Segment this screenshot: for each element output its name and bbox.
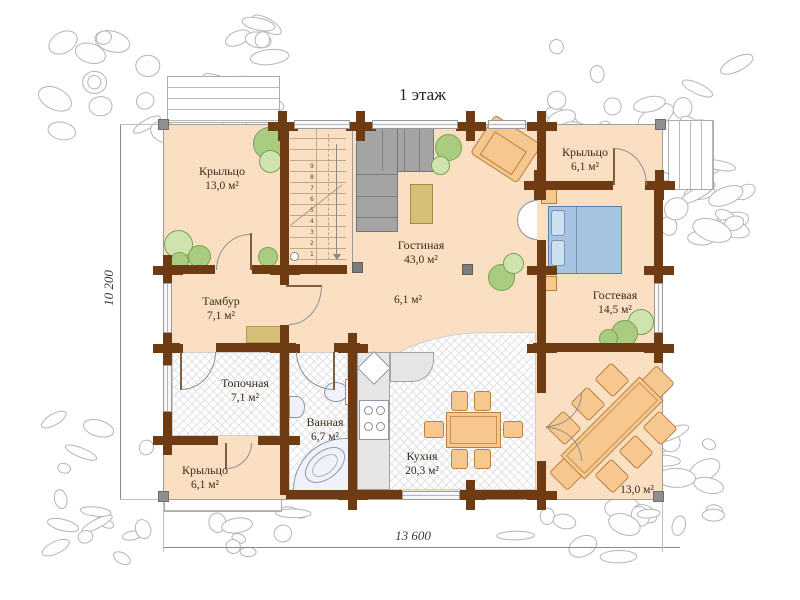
doormat [246, 326, 284, 343]
burner-icon [376, 406, 385, 415]
room-name: Крыльцо [160, 463, 250, 478]
stair-step-number: 8 [310, 174, 314, 181]
wall-joint [655, 170, 664, 200]
page-title: 1 этаж [350, 85, 495, 105]
window [402, 491, 460, 500]
window [488, 120, 526, 129]
stair-step-number: 3 [310, 229, 314, 236]
room-area: 6,7 м² [280, 430, 370, 445]
plant [258, 247, 278, 267]
wall-joint [348, 480, 357, 510]
dining-table [446, 412, 501, 448]
room-area: 20,3 м² [377, 464, 467, 479]
room-label-bathroom: Ванная 6,7 м² [280, 415, 370, 445]
room-label-guest: Гостевая 14,5 м² [570, 288, 660, 318]
plant [431, 156, 450, 175]
wall-joint [278, 111, 287, 141]
window [372, 120, 458, 129]
sofa-cushion-line [357, 174, 397, 175]
stair-dashed-rail [328, 134, 329, 260]
wall-joint [163, 425, 172, 455]
room-area: 13,0 м² [592, 483, 682, 498]
room-name: Ванная [280, 415, 370, 430]
wall-joint [537, 111, 546, 141]
corner-post [655, 119, 666, 130]
stair-step-number: 7 [310, 185, 314, 192]
dimension-line-left [120, 124, 121, 500]
chair [474, 391, 491, 411]
room-area: 7,1 м² [200, 391, 290, 406]
coffee-table [410, 184, 433, 224]
bed-pillow [551, 240, 565, 266]
stair-step-number: 5 [310, 207, 314, 214]
room-area: 6,1 м² [363, 293, 453, 308]
wall-joint [356, 111, 365, 141]
stair-step-number: 4 [310, 218, 314, 225]
entry-steps-top-right [668, 120, 714, 190]
stair-step-number: 9 [310, 163, 314, 170]
room-area: 14,5 м² [570, 303, 660, 318]
wall-joint [163, 333, 172, 363]
entry-steps-top-left [167, 76, 280, 123]
wall-joint [348, 333, 357, 363]
room-label-hall: 6,1 м² [363, 293, 453, 308]
entry-steps-bottom-left [164, 499, 282, 512]
dimension-width: 13 600 [363, 528, 463, 544]
dimension-line-bottom [163, 547, 680, 548]
room-label-porch-top-right: Крыльцо 6,1 м² [540, 145, 630, 175]
room-name: Гостиная [376, 238, 466, 253]
bed-pillow [551, 210, 565, 236]
stair-divider [316, 128, 317, 266]
stair-step-number: 2 [310, 240, 314, 247]
extension-line [120, 499, 163, 500]
stair-start-post [290, 252, 299, 261]
room-name: Крыльцо [540, 145, 630, 160]
room-name: Гостевая [570, 288, 660, 303]
room-area: 43,0 м² [376, 253, 466, 268]
sofa-cushion-line [357, 196, 397, 197]
staircase: 1 2 3 4 5 6 7 8 9 [290, 128, 346, 266]
wall [252, 265, 347, 274]
room-area: 13,0 м² [177, 179, 267, 194]
sofa-cushion-line [404, 129, 405, 171]
window [163, 365, 172, 412]
wall-joint [537, 255, 546, 285]
bed-fold-line [576, 207, 577, 273]
wall-joint [654, 255, 663, 285]
dining-table-inner [450, 416, 497, 444]
burner-icon [376, 422, 385, 431]
burner-icon [364, 406, 373, 415]
room-name: Топочная [200, 376, 290, 391]
wall [280, 124, 289, 270]
wall-joint [280, 255, 289, 285]
wall-joint [280, 333, 289, 363]
room-label-tambur: Тамбур 7,1 м² [176, 294, 266, 324]
stairs-living-divider [352, 124, 353, 268]
wall-joint [466, 111, 475, 141]
window [294, 120, 350, 129]
wall-joint [537, 480, 546, 510]
wall-joint [654, 333, 663, 363]
column [352, 262, 363, 273]
floor-plan: 10 200 13 600 1 2 3 4 5 6 7 8 9 [0, 0, 800, 600]
sofa-cushion-line [357, 217, 397, 218]
stair-direction-line [336, 144, 337, 254]
room-area: 7,1 м² [176, 309, 266, 324]
wall-joint [466, 480, 475, 510]
wall-joint [163, 255, 172, 285]
dimension-height: 10 200 [101, 243, 117, 333]
room-label-terrace: 13,0 м² [592, 483, 682, 498]
wall-joint [537, 333, 546, 363]
room-label-kitchen: Кухня 20,3 м² [377, 449, 467, 479]
stair-step-number: 1 [310, 251, 314, 258]
chair [424, 421, 444, 438]
room-name: Кухня [377, 449, 467, 464]
room-area: 6,1 м² [540, 160, 630, 175]
corner-post [158, 119, 169, 130]
extension-line [120, 124, 163, 125]
chair [474, 449, 491, 469]
stair-step-number: 6 [310, 196, 314, 203]
stair-arrow-icon [333, 254, 341, 260]
room-label-porch-bottom-left: Крыльцо 6,1 м² [160, 463, 250, 493]
plant [503, 253, 524, 274]
extension-line [662, 500, 663, 552]
window [163, 283, 172, 333]
room-label-boiler: Топочная 7,1 м² [200, 376, 290, 406]
room-label-living: Гостиная 43,0 м² [376, 238, 466, 268]
room-name: Тамбур [176, 294, 266, 309]
room-area: 6,1 м² [160, 478, 250, 493]
chair [451, 391, 468, 411]
sofa-cushion-line [419, 129, 420, 171]
sofa-cushion-line [382, 129, 383, 171]
room-label-porch-top-left: Крыльцо 13,0 м² [177, 164, 267, 194]
room-name: Крыльцо [177, 164, 267, 179]
door-leaf [250, 233, 252, 270]
